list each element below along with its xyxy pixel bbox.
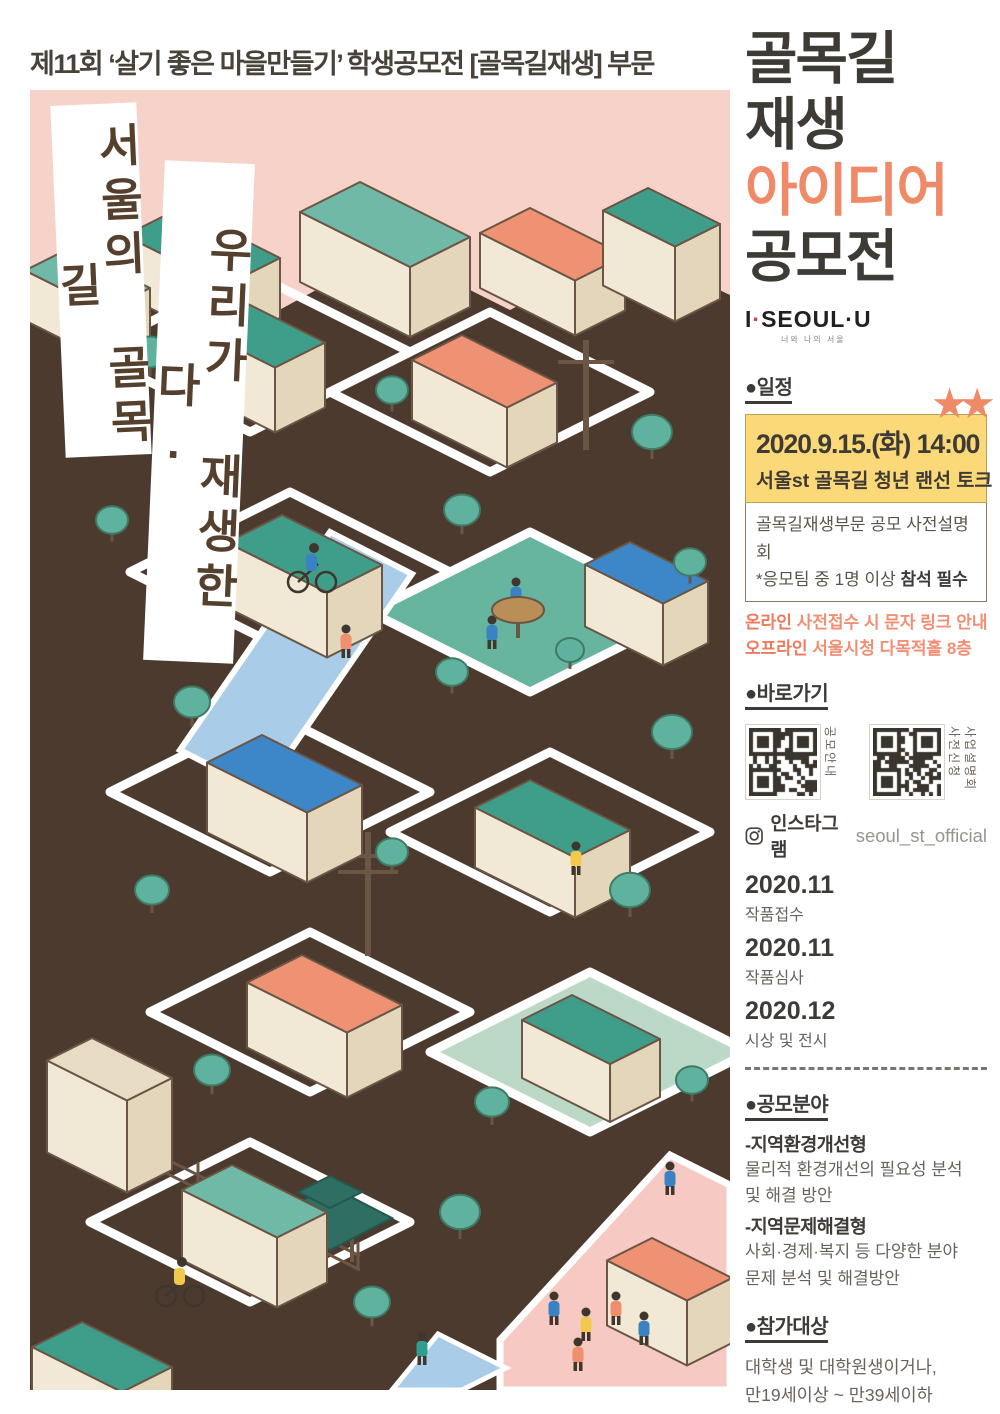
timeline-date: 2020.12 xyxy=(745,997,987,1026)
logo-u: U xyxy=(854,306,872,332)
qr-item-apply: 공모안내 xyxy=(745,724,821,800)
qr-row: 공모안내 사전신청 사업설명회 xyxy=(745,724,987,800)
eligibility-line: 만19세이상 ~ 만39세이하 xyxy=(745,1381,987,1409)
schedule-datetime: 2020.9.15.(화) 14:00 xyxy=(756,422,976,461)
schedule-highlight-box: ★★ 2020.9.15.(화) 14:00 서울st 골목길 청년 랜선 토크 xyxy=(745,414,987,503)
qr-item-briefing: 사전신청 사업설명회 xyxy=(869,724,945,800)
dashed-divider xyxy=(745,1067,987,1070)
star-icons: ★★ xyxy=(931,383,986,425)
timeline-label: 작품심사 xyxy=(745,964,987,988)
poster: 제11회 ‘살기 좋은 마을만들기’ 학생공모전 [골목길재생] 부문 xyxy=(0,0,1000,1414)
schedule-info-line1: 골목길재생부문 공모 사전설명회 xyxy=(756,511,976,565)
vertical-banner-seoul-alley: 서울의 골목길 xyxy=(50,102,151,457)
schedule-notes: 온라인 사전접수 시 문자 링크 안내 오프라인 서울시청 다목적홀 8층 xyxy=(745,610,987,663)
schedule-info-box: 골목길재생부문 공모 사전설명회 *응모팀 중 1명 이상 참석 필수 xyxy=(745,502,987,602)
shortcuts-heading: ●바로가기 xyxy=(745,677,828,710)
category-desc: 및 해결 방안 xyxy=(745,1183,987,1209)
title-line-2: 재생 xyxy=(745,92,987,158)
qr-label-contest-info: 공모안내 xyxy=(822,726,839,778)
instagram-icon xyxy=(745,826,763,846)
eligibility-line: 대학생 및 대학원생이거나, xyxy=(745,1353,987,1381)
village-illustration: 서울의 골목길 우리가 재생한다. xyxy=(30,90,730,1390)
section-schedule: ●일정 ★★ 2020.9.15.(화) 14:00 서울st 골목길 청년 랜… xyxy=(745,371,987,662)
qr-label-pre-apply: 사전신청 xyxy=(946,726,963,778)
schedule-event-name: 서울st 골목길 청년 랜선 토크 xyxy=(756,464,976,493)
online-note: 온라인 사전접수 시 문자 링크 안내 xyxy=(745,610,987,636)
timeline-date: 2020.11 xyxy=(745,871,987,900)
logo-tagline: 너와 나의 서울 xyxy=(781,334,987,345)
timeline-label: 작품접수 xyxy=(745,901,987,925)
timeline-date: 2020.11 xyxy=(745,934,987,963)
instagram-row: 인스타그램 seoul_st_official xyxy=(745,810,987,862)
timeline-item-awards: 2020.12 시상 및 전시 xyxy=(745,997,987,1051)
category-desc: 문제 분석 및 해결방안 xyxy=(745,1266,987,1292)
category-name-environment: -지역환경개선형 xyxy=(745,1131,987,1157)
qr-code-briefing xyxy=(869,724,945,800)
eligibility-heading: ●참가대상 xyxy=(745,1310,828,1343)
category-desc: 물리적 환경개선의 필요성 분석 xyxy=(745,1157,987,1183)
timeline-item-judging: 2020.11 작품심사 xyxy=(745,934,987,988)
i-seoul-u-logo: I·SEOUL·U xyxy=(745,306,987,333)
timeline-label: 시상 및 전시 xyxy=(745,1027,987,1051)
schedule-heading: ●일정 xyxy=(745,371,792,404)
section-shortcuts: ●바로가기 공모안내 사전신청 사업설명회 인스타그램 xyxy=(745,677,987,862)
offline-note: 오프라인 서울시청 다목적홀 8층 xyxy=(745,636,987,662)
instagram-label: 인스타그램 xyxy=(770,810,848,862)
timeline-item-submission: 2020.11 작품접수 xyxy=(745,871,987,925)
qr-code-contest-info xyxy=(745,724,821,800)
category-desc: 사회·경제·복지 등 다양한 분야 xyxy=(745,1239,987,1265)
title-line-4: 공모전 xyxy=(745,224,987,290)
poster-header-title: 제11회 ‘살기 좋은 마을만들기’ 학생공모전 [골목길재생] 부문 xyxy=(30,42,654,81)
qr-label-briefing: 사업설명회 xyxy=(962,726,979,791)
instagram-handle: seoul_st_official xyxy=(856,825,987,847)
logo-seoul: SEOUL xyxy=(761,306,845,332)
sidebar: 골목길 재생 아이디어 공모전 I·SEOUL·U 너와 나의 서울 ●일정 ★… xyxy=(745,26,987,1414)
logo-red-dot: · xyxy=(752,306,761,332)
title-line-1: 골목길 xyxy=(745,26,987,92)
categories-heading: ●공모분야 xyxy=(745,1088,828,1121)
section-eligibility: ●참가대상 대학생 및 대학원생이거나, 만19세이상 ~ 만39세이하 (공고… xyxy=(745,1310,987,1414)
title-line-3-accent: 아이디어 xyxy=(745,158,987,224)
poster-main-title: 골목길 재생 아이디어 공모전 xyxy=(745,26,987,290)
timeline: 2020.11 작품접수 2020.11 작품심사 2020.12 시상 및 전… xyxy=(745,871,987,1051)
logo-dark-dot: · xyxy=(845,306,854,332)
eligibility-line: (공고일 기준) xyxy=(745,1410,987,1414)
schedule-info-line2: *응모팀 중 1명 이상 참석 필수 xyxy=(756,566,976,593)
section-categories: ●공모분야 -지역환경개선형 물리적 환경개선의 필요성 분석 및 해결 방안 … xyxy=(745,1088,987,1292)
category-name-problem-solving: -지역문제해결형 xyxy=(745,1213,987,1239)
